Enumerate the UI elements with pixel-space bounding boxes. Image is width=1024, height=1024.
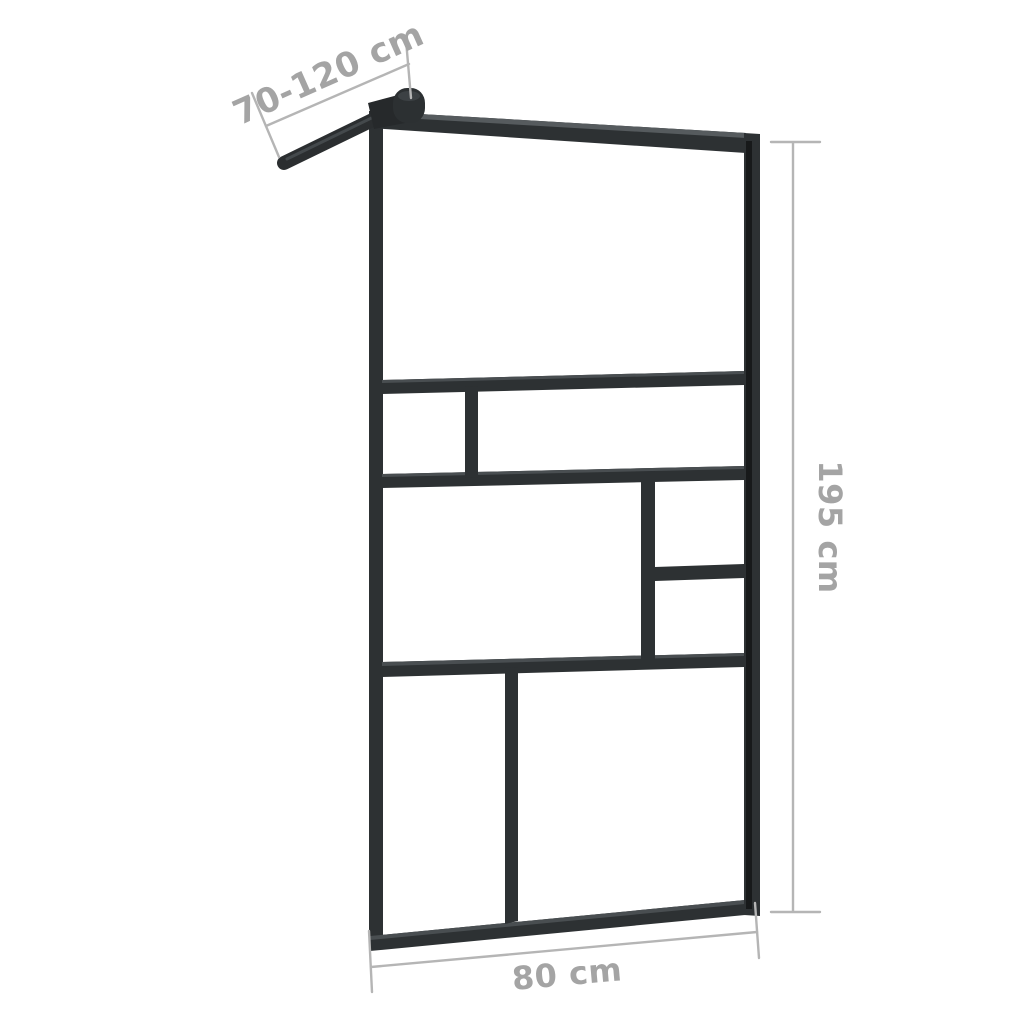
- wall-profile-groove: [746, 141, 752, 909]
- shower-wall-dimension-diagram: 70-120 cm 195 cm 80 cm: [0, 0, 1024, 1024]
- glass-divider-short-rail: [655, 564, 744, 581]
- diagram-canvas: 70-120 cm 195 cm 80 cm: [0, 0, 1024, 1024]
- dimension-height-label: 195 cm: [811, 460, 849, 593]
- glass-divider-vertical-1: [465, 386, 478, 478]
- wall-mount-cap-highlight: [398, 91, 420, 101]
- glass-divider-vertical-3: [505, 667, 518, 924]
- shower-frame: [284, 88, 760, 951]
- glass-divider-vertical-2: [641, 471, 655, 669]
- frame-left-stile: [369, 111, 383, 950]
- dimension-height: 195 cm: [771, 142, 849, 912]
- dimension-width-label: 80 cm: [510, 950, 623, 997]
